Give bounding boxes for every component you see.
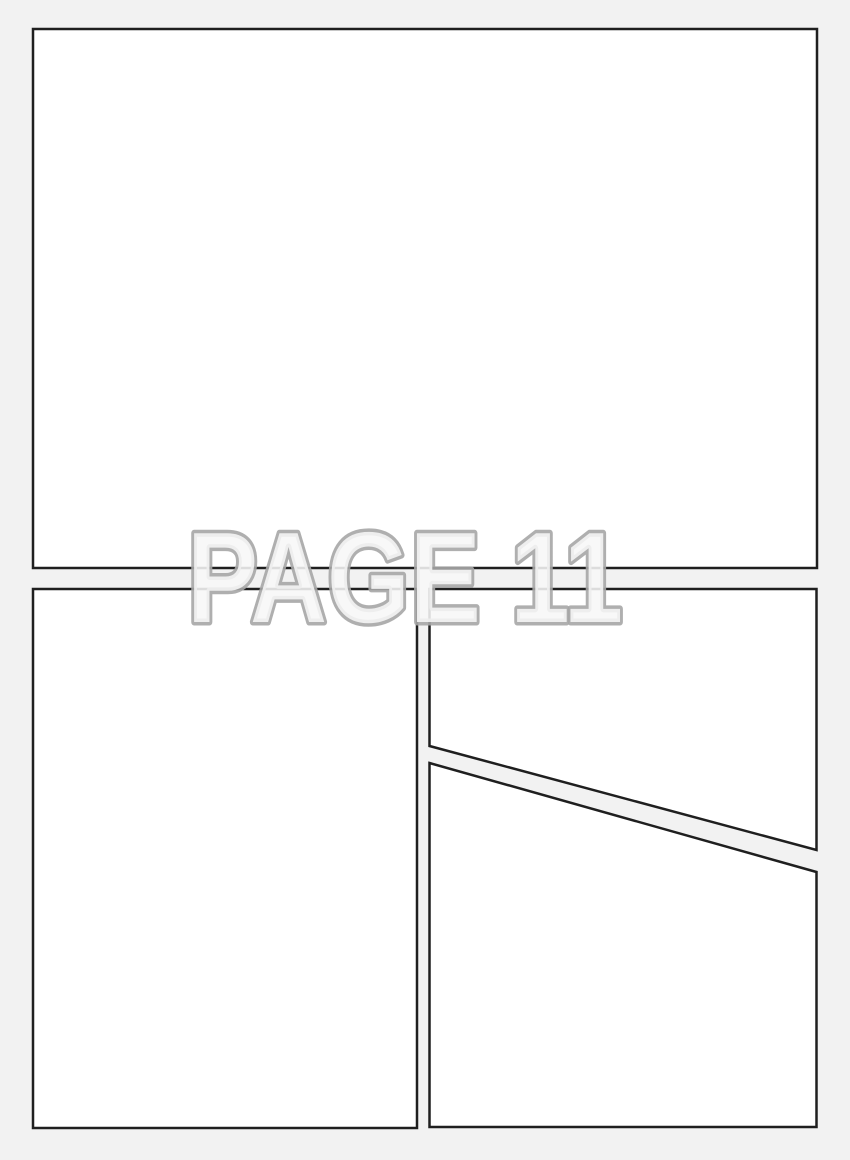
bottom-left-panel bbox=[33, 589, 417, 1128]
comic-page-template: PAGE 11 bbox=[0, 0, 850, 1160]
panel-layout bbox=[0, 0, 850, 1160]
top-panel bbox=[33, 29, 817, 568]
